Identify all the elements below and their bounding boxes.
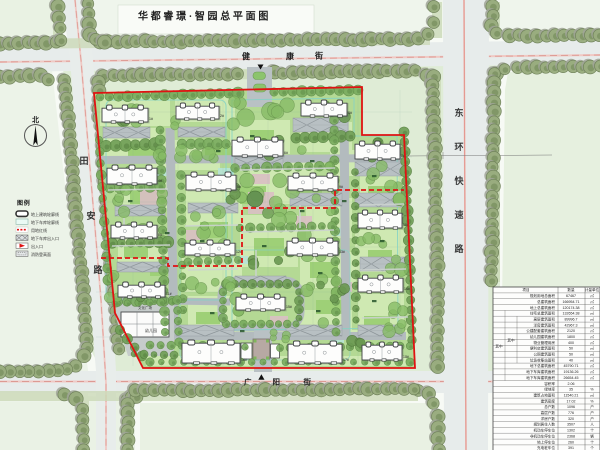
svg-text:地下车库建筑面积: 地下车库建筑面积 xyxy=(526,369,555,374)
svg-text:其中: 其中 xyxy=(495,344,503,349)
svg-text:东: 东 xyxy=(454,107,463,118)
svg-text:路: 路 xyxy=(454,243,464,254)
svg-text:文化广场: 文化广场 xyxy=(138,305,152,310)
svg-text:街: 街 xyxy=(314,51,323,61)
svg-text:其中: 其中 xyxy=(507,338,515,343)
svg-text:地上停车位: 地上停车位 xyxy=(537,439,555,444)
svg-text:户: 户 xyxy=(590,410,594,415)
svg-text:图例: 图例 xyxy=(17,199,31,207)
svg-text:㎡: ㎡ xyxy=(590,299,594,304)
svg-text:㎡: ㎡ xyxy=(590,393,594,398)
svg-text:166954.71: 166954.71 xyxy=(563,300,580,304)
svg-text:776: 776 xyxy=(568,411,574,415)
svg-text:便利店建筑面积: 便利店建筑面积 xyxy=(530,346,556,351)
svg-text:充电桩车位: 充电桩车位 xyxy=(537,445,555,450)
svg-text:㎡: ㎡ xyxy=(590,334,594,339)
svg-text:环: 环 xyxy=(454,142,463,152)
svg-text:㎡: ㎡ xyxy=(590,340,594,345)
svg-text:地下车库建筑面积: 地下车库建筑面积 xyxy=(526,375,555,380)
svg-text:50: 50 xyxy=(569,347,573,351)
svg-text:1#: 1# xyxy=(149,117,153,121)
svg-text:㎡: ㎡ xyxy=(590,293,594,298)
svg-text:物业管理用房: 物业管理用房 xyxy=(533,340,555,345)
svg-text:安: 安 xyxy=(86,210,95,221)
svg-text:广: 广 xyxy=(244,377,252,387)
svg-text:出入口: 出入口 xyxy=(31,243,43,249)
svg-text:户: 户 xyxy=(590,404,594,409)
svg-text:㎡: ㎡ xyxy=(590,375,594,380)
svg-text:19136.26: 19136.26 xyxy=(564,370,579,374)
svg-text:2#: 2# xyxy=(220,114,224,118)
svg-text:26654.45: 26654.45 xyxy=(564,376,579,380)
svg-text:16#: 16# xyxy=(241,358,247,362)
svg-text:5#: 5# xyxy=(237,185,241,189)
svg-text:50: 50 xyxy=(569,353,573,357)
svg-text:地下车库出入口: 地下车库出入口 xyxy=(31,235,59,241)
svg-text:机动车停车位: 机动车停车位 xyxy=(533,428,555,433)
svg-text:田: 田 xyxy=(79,156,88,166)
svg-text:个: 个 xyxy=(590,428,594,433)
svg-text:住宅总建筑面积: 住宅总建筑面积 xyxy=(530,311,556,316)
svg-text:㎡: ㎡ xyxy=(590,316,594,321)
svg-text:2120: 2120 xyxy=(567,329,575,333)
svg-text:8#: 8# xyxy=(158,233,162,237)
svg-text:数量: 数量 xyxy=(567,287,575,292)
svg-text:公厕建筑面积: 公厕建筑面积 xyxy=(533,352,555,357)
svg-text:17#: 17# xyxy=(343,358,349,362)
svg-text:高层建筑面积: 高层建筑面积 xyxy=(533,316,555,321)
svg-text:18#: 18# xyxy=(403,355,409,359)
svg-text:40: 40 xyxy=(569,358,573,362)
svg-text:1096: 1096 xyxy=(567,405,575,409)
svg-text:幼儿园: 幼儿园 xyxy=(145,327,157,333)
svg-text:建筑密度: 建筑密度 xyxy=(541,398,556,403)
svg-text:㎡: ㎡ xyxy=(590,352,594,357)
svg-text:健: 健 xyxy=(242,51,250,61)
svg-text:康: 康 xyxy=(286,51,295,61)
svg-text:2.06: 2.06 xyxy=(568,382,575,386)
svg-text:垃圾收集站面积: 垃圾收集站面积 xyxy=(530,357,556,362)
svg-text:132654.38: 132654.38 xyxy=(563,312,580,316)
svg-text:4#: 4# xyxy=(158,179,162,183)
svg-text:辆: 辆 xyxy=(590,433,594,438)
svg-text:2368: 2368 xyxy=(567,434,575,438)
svg-text:消防登高面: 消防登高面 xyxy=(31,251,51,257)
svg-text:洋房户数: 洋房户数 xyxy=(541,416,556,421)
svg-text:地下总建筑面积: 地下总建筑面积 xyxy=(530,363,556,368)
svg-text:6#: 6# xyxy=(284,151,288,155)
svg-text:阳: 阳 xyxy=(273,378,281,387)
svg-text:1800: 1800 xyxy=(567,335,575,339)
svg-text:人: 人 xyxy=(590,422,594,427)
svg-text:快: 快 xyxy=(454,175,464,186)
svg-text:地下车库轮廓线: 地下车库轮廓线 xyxy=(31,219,59,225)
svg-text:15#: 15# xyxy=(286,305,292,309)
svg-text:容积率: 容积率 xyxy=(544,381,555,386)
svg-text:高层户数: 高层户数 xyxy=(541,410,556,415)
svg-text:㎡: ㎡ xyxy=(590,357,594,362)
svg-text:个: 个 xyxy=(590,439,594,444)
svg-text:规划用地总面积: 规划用地总面积 xyxy=(530,293,556,298)
svg-text:3#: 3# xyxy=(348,111,352,115)
svg-text:67467: 67467 xyxy=(566,294,576,298)
svg-text:260: 260 xyxy=(568,440,574,444)
svg-text:45790.71: 45790.71 xyxy=(564,364,579,368)
svg-text:㎡: ㎡ xyxy=(590,346,594,351)
svg-text:3507: 3507 xyxy=(567,423,575,427)
svg-text:㎡: ㎡ xyxy=(590,305,594,310)
svg-text:项目: 项目 xyxy=(522,287,529,292)
svg-text:总户数: 总户数 xyxy=(544,404,555,409)
svg-text:9#: 9# xyxy=(339,185,343,189)
svg-text:11#: 11# xyxy=(166,292,172,296)
svg-text:幼儿园建筑面积: 幼儿园建筑面积 xyxy=(530,334,556,339)
svg-text:规划居住人数: 规划居住人数 xyxy=(533,422,555,427)
svg-text:街: 街 xyxy=(303,377,312,387)
svg-text:总建筑面积: 总建筑面积 xyxy=(537,299,555,304)
svg-text:㎡: ㎡ xyxy=(590,369,594,374)
svg-text:㎡: ㎡ xyxy=(590,322,594,327)
svg-text:1302: 1302 xyxy=(567,429,575,433)
svg-text:14#: 14# xyxy=(404,287,410,291)
svg-text:400: 400 xyxy=(568,341,574,345)
svg-text:计量单位: 计量单位 xyxy=(585,287,600,292)
svg-text:㎡: ㎡ xyxy=(590,328,594,333)
svg-text:89996.7: 89996.7 xyxy=(565,317,578,321)
svg-text:391: 391 xyxy=(568,446,574,450)
svg-text:地上建筑轮廓线: 地上建筑轮廓线 xyxy=(31,211,59,217)
svg-text:洋房建筑面积: 洋房建筑面积 xyxy=(533,322,555,327)
svg-text:北: 北 xyxy=(32,115,39,124)
svg-text:42967.3: 42967.3 xyxy=(565,323,578,327)
svg-text:户: 户 xyxy=(590,416,594,421)
svg-text:12#: 12# xyxy=(236,250,242,254)
svg-text:地上总建筑面积: 地上总建筑面积 xyxy=(530,305,556,310)
svg-text:13#: 13# xyxy=(339,250,345,254)
svg-text:个: 个 xyxy=(590,445,594,450)
svg-text:公建配套建筑面积: 公建配套建筑面积 xyxy=(526,328,555,333)
svg-text:㎡: ㎡ xyxy=(590,363,594,368)
svg-text:路: 路 xyxy=(93,264,103,275)
svg-text:㎡: ㎡ xyxy=(590,311,594,316)
svg-text:35: 35 xyxy=(569,388,573,392)
svg-text:11540.21: 11540.21 xyxy=(564,394,579,398)
svg-text:非机动车停车位: 非机动车停车位 xyxy=(530,433,556,438)
svg-text:绿地率: 绿地率 xyxy=(544,387,555,392)
svg-text:建筑占地面积: 建筑占地面积 xyxy=(533,393,555,398)
svg-text:用地红线: 用地红线 xyxy=(31,227,47,233)
svg-text:华都睿璟·智园总平面图: 华都睿璟·智园总平面图 xyxy=(138,10,271,23)
svg-text:17.02: 17.02 xyxy=(567,399,576,403)
svg-text:速: 速 xyxy=(454,209,463,220)
svg-text:120174.38: 120174.38 xyxy=(563,306,580,310)
svg-text:320: 320 xyxy=(568,417,574,421)
